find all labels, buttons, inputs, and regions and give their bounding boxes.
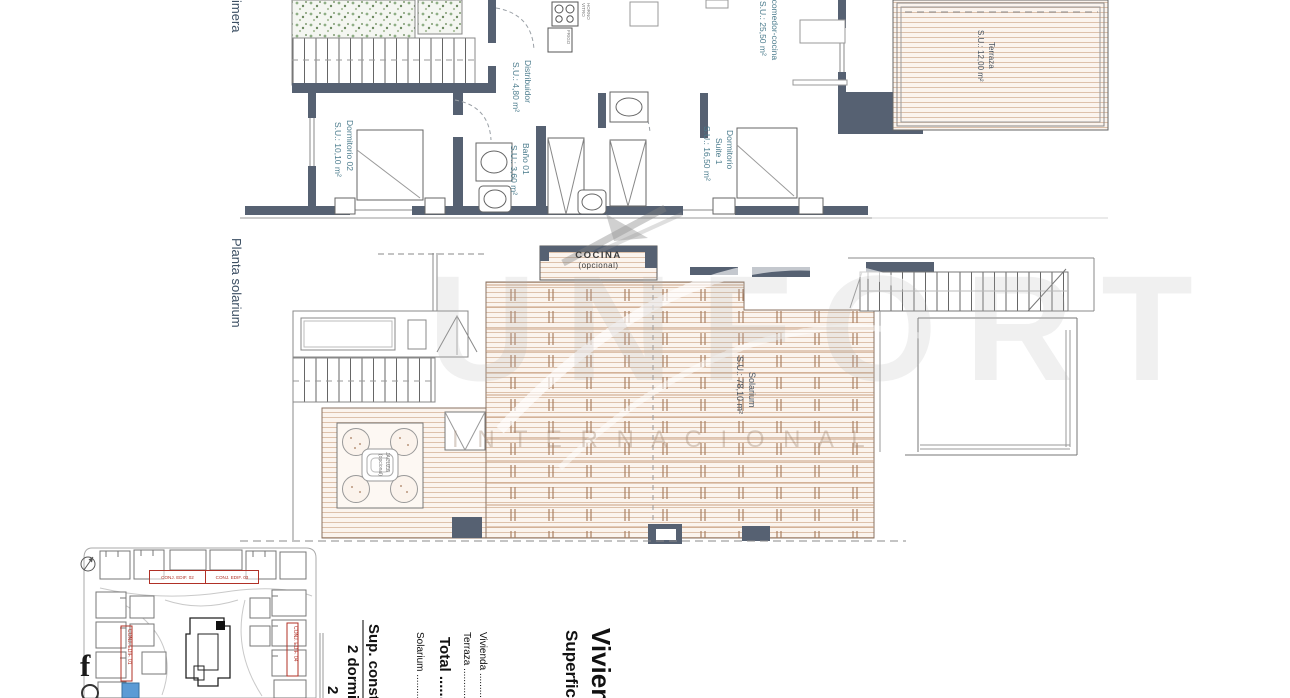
plan-title-primera: Planta primera [229, 0, 243, 33]
summary-title: Vivienda [587, 628, 614, 698]
nightstand [713, 198, 735, 214]
terraza [893, 0, 1108, 130]
cocina-line2: (opcional) [540, 261, 657, 270]
suite-bathroom-fixtures [578, 92, 648, 214]
summary-row-vivienda: Vivienda ............ [477, 632, 488, 698]
label-suite-line2: Suite 1 [714, 138, 723, 164]
entry-stairs [292, 38, 475, 85]
nightstand [799, 198, 823, 214]
cocina-line1: COCINA [540, 250, 657, 261]
summary-dormitorios: 2 dormitorios [344, 645, 360, 698]
label-dormitorio-02: Dormitorio 02 [345, 120, 354, 171]
shower [610, 140, 646, 206]
summary-row-terraza: Terraza ............ [461, 632, 472, 698]
nightstand [335, 198, 355, 214]
label-conj-edif-01: CONJ. EDIF. 01 [126, 629, 131, 665]
summary-row-total: Total ............ [436, 637, 452, 698]
label-cocina-opcional: COCINA (opcional) [540, 250, 657, 270]
nightstand [425, 198, 445, 214]
label-jacuzzi-opcional: (opcional) [377, 454, 382, 476]
label-bano-01-area: S.U.: 3,60 m² [509, 145, 518, 195]
label-conj-edif-02: CONJ. EDIF. 02 [149, 570, 206, 584]
summary-sup-construida: Sup. construida [365, 624, 381, 698]
stairs-solarium [293, 358, 435, 402]
floorplan-sheet: UNFORT I N T E R N A C I O N A L Planta … [0, 0, 1290, 698]
label-vitro: VITRO [580, 3, 585, 17]
hob [552, 2, 578, 26]
central-building [186, 618, 230, 686]
label-suite-area: S.U.: 16,50 m² [702, 126, 711, 181]
label-solarium-area: S.U.: 78,10 m² [735, 356, 744, 414]
label-salon: Salón-comedor-cocina [770, 0, 779, 60]
summary-subtitle: Superficies [562, 630, 580, 698]
summary-row-solarium: Solarium ............ [414, 632, 425, 698]
summary-banos: 2 baños [324, 686, 340, 698]
planter-small [418, 0, 462, 34]
label-suite-line1: Dormitorio [725, 130, 734, 169]
label-frigo: FRIGO [565, 30, 570, 44]
label-solarium: Solarium [747, 372, 756, 408]
highlighted-unit [122, 683, 139, 698]
watermark-subtext: I N T E R N A C I O N A L [452, 426, 871, 454]
north-arrow-icon [81, 557, 95, 571]
label-conj-edif-04: CONJ. EDIF. 04 [292, 626, 297, 662]
label-terraza-area: S.U.: 12,00 m² [976, 30, 984, 82]
label-dormitorio-02-area: S.U.: 10,10 m² [333, 122, 342, 177]
plan-title-solarium: Planta solarium [229, 238, 243, 328]
planter [292, 0, 415, 38]
kitchen-fixtures [548, 2, 578, 52]
facebook-icon: f [80, 648, 90, 684]
label-distribuidor-area: S.U.: 4,80 m² [511, 62, 520, 112]
label-conj-edif-03: CONJ. EDIF. 03 [205, 570, 259, 584]
living-room-furniture [630, 0, 847, 85]
label-salon-area: S.U.: 25,50 m² [758, 1, 767, 56]
label-distribuidor: Distribuidor [523, 60, 532, 103]
label-terraza: Terraza [987, 42, 995, 69]
label-jacuzzi: JACUZZI [384, 452, 389, 473]
label-bano-01: Baño 01 [521, 143, 530, 175]
